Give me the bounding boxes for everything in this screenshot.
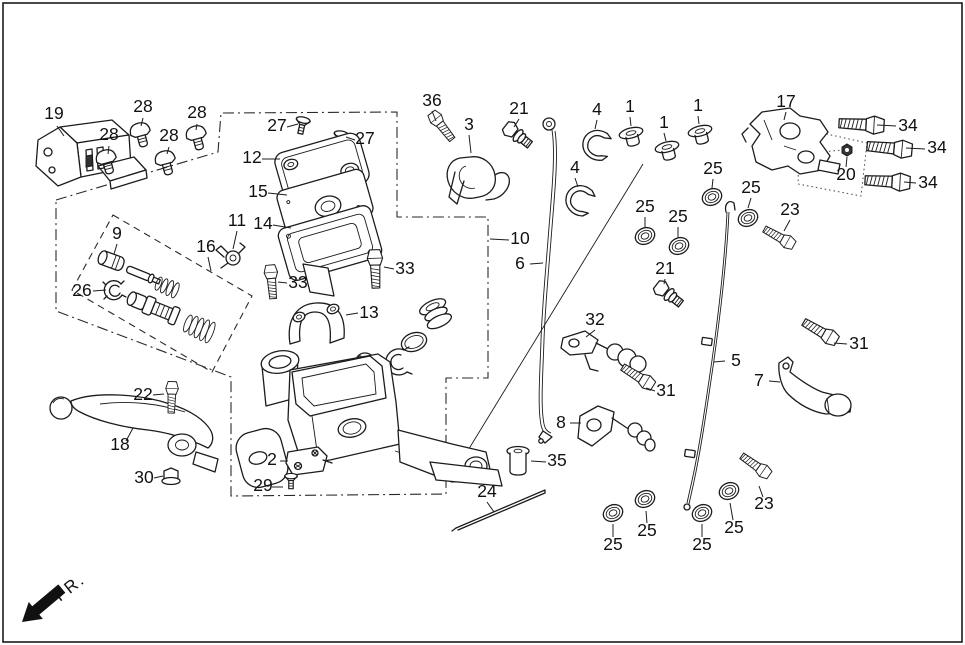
part-label-21: 21 — [509, 98, 528, 118]
part-label-26: 26 — [72, 280, 91, 300]
part-label-28: 28 — [187, 102, 206, 122]
part-label-32: 32 — [585, 309, 604, 329]
part-25-washer — [667, 235, 692, 258]
part-label-28: 28 — [133, 96, 152, 116]
leader-line-part-22 — [153, 394, 164, 395]
part-label-27: 27 — [355, 128, 374, 148]
part-29-screw — [285, 473, 298, 488]
leader-line-part-24 — [487, 502, 494, 512]
part-label-17: 17 — [776, 91, 795, 111]
part-label-11: 11 — [228, 210, 246, 230]
leader-line-part-1 — [698, 116, 699, 124]
part-label-20: 20 — [836, 164, 856, 184]
leader-line-part-1 — [664, 133, 666, 141]
part-23-oil-bolt — [738, 450, 773, 480]
part-label-25: 25 — [637, 520, 656, 540]
part-label-28: 28 — [99, 124, 118, 144]
part-label-35: 35 — [547, 450, 566, 470]
part-26-circlip — [103, 281, 126, 300]
part-28-screw — [153, 149, 179, 177]
leader-line-part-4 — [595, 120, 597, 129]
leader-line-part-1 — [630, 117, 631, 126]
parts-layer — [36, 108, 913, 531]
part-label-18: 18 — [110, 434, 129, 454]
leader-line-part-6 — [530, 263, 543, 264]
part-label-24: 24 — [477, 481, 497, 501]
part-25-washer — [717, 480, 742, 503]
part-1-grommet — [687, 123, 715, 146]
part-label-19: 19 — [44, 103, 63, 123]
part-label-25: 25 — [668, 206, 687, 226]
exploded-diagram-canvas: 1928282828272712151411169263632141114251… — [0, 0, 965, 645]
leader-line-part-5 — [714, 361, 725, 362]
part-32-rod-joint — [561, 331, 646, 372]
part-label-29: 29 — [253, 475, 272, 495]
part-label-25: 25 — [692, 534, 711, 554]
leader-line-part-16 — [208, 257, 211, 271]
leader-line-part-31 — [834, 343, 847, 344]
part-17-bracket — [742, 108, 840, 174]
part-25-washer — [633, 225, 658, 248]
part-label-28: 28 — [159, 125, 178, 145]
leader-line-part-13 — [346, 313, 358, 315]
part-33-bolt — [263, 264, 279, 299]
part-30-pivot-nut — [162, 468, 180, 485]
part-36-bolt — [426, 109, 457, 144]
leader-line-part-11 — [233, 231, 237, 249]
part-35-dust-cup — [507, 447, 529, 476]
part-label-5: 5 — [731, 350, 741, 370]
leader-line-part-30 — [154, 476, 163, 478]
leader-line-part-10 — [490, 239, 509, 240]
part-6-brake-hose — [539, 118, 557, 443]
leader-line-part-7 — [769, 381, 780, 382]
part-1-grommet — [618, 125, 646, 148]
part-label-4: 4 — [592, 99, 602, 119]
part-20-nut — [842, 144, 852, 156]
part-label-2: 2 — [267, 449, 277, 469]
part-label-12: 12 — [242, 147, 261, 167]
part-label-3: 3 — [464, 114, 474, 134]
part-label-8: 8 — [556, 412, 566, 432]
part-label-25: 25 — [635, 196, 654, 216]
leader-line-part-27 — [287, 124, 298, 127]
part-13-handlebar-clamp — [289, 303, 344, 344]
part-piston-assembly — [125, 289, 181, 326]
part-label-34: 34 — [918, 172, 938, 192]
part-label-25: 25 — [741, 177, 760, 197]
part-3-hose-clamp — [447, 157, 509, 204]
part-label-33: 33 — [395, 258, 414, 278]
piston-kit-boundary — [72, 215, 252, 372]
part-label-13: 13 — [359, 302, 378, 322]
part-11-wire-guide — [216, 243, 245, 268]
part-25-washer — [700, 186, 725, 209]
part-23-oil-bolt — [761, 223, 797, 251]
part-label-1: 1 — [693, 95, 703, 115]
part-label-14: 14 — [253, 213, 273, 233]
part-label-1: 1 — [659, 112, 669, 132]
part-9-piston-cup — [96, 250, 125, 272]
part-label-33: 33 — [288, 272, 307, 292]
part-label-7: 7 — [754, 370, 764, 390]
part-18-brake-lever — [50, 395, 218, 472]
part-master-cylinder-body — [233, 348, 502, 491]
part-34-bolt — [865, 171, 911, 191]
leader-line-part-33 — [384, 267, 394, 269]
leader-line-part-33 — [278, 282, 287, 283]
part-label-4: 4 — [570, 157, 580, 177]
part-label-27: 27 — [267, 115, 286, 135]
part-o-ring — [399, 329, 430, 355]
part-4-hose-clip — [579, 127, 613, 162]
part-label-23: 23 — [780, 199, 799, 219]
part-28-screw — [184, 124, 210, 152]
part-label-1: 1 — [625, 96, 635, 116]
part-7-brake-arm — [779, 357, 851, 416]
leader-line-part-35 — [531, 461, 546, 462]
leader-line-part-25 — [712, 179, 713, 188]
part-27-cover-screw — [293, 116, 310, 136]
leader-line-part-3 — [469, 135, 471, 153]
part-25-washer — [736, 207, 761, 230]
part-label-9: 9 — [112, 223, 122, 243]
part-33-bolt — [367, 250, 384, 289]
part-label-15: 15 — [248, 181, 267, 201]
part-label-25: 25 — [703, 158, 722, 178]
part-5-brake-rod — [684, 202, 735, 510]
part-34-bolt — [866, 137, 912, 159]
part-label-34: 34 — [927, 137, 947, 157]
part-label-6: 6 — [515, 253, 525, 273]
part-label-10: 10 — [510, 228, 530, 248]
part-label-34: 34 — [898, 115, 918, 135]
part-1-grommet — [654, 139, 682, 162]
part-label-22: 22 — [133, 384, 152, 404]
part-label-36: 36 — [422, 90, 441, 110]
part-label-21: 21 — [655, 258, 674, 278]
part-label-31: 31 — [849, 333, 868, 353]
parts-diagram-page: 1928282828272712151411169263632141114251… — [0, 0, 965, 645]
part-25-washer — [633, 488, 658, 511]
leader-line-part-23 — [784, 220, 790, 231]
part-label-16: 16 — [196, 236, 215, 256]
part-25-washer — [690, 502, 715, 525]
part-25-washer — [601, 502, 626, 525]
part-21-banjo-bolt — [501, 119, 535, 151]
part-label-23: 23 — [754, 493, 773, 513]
part-4-hose-clip — [561, 181, 598, 219]
part-return-spring-large — [181, 312, 217, 344]
part-34-bolt — [839, 114, 885, 134]
part-8-joint-bracket — [578, 406, 655, 451]
part-label-25: 25 — [724, 517, 743, 537]
leader-line-part-25 — [748, 198, 751, 208]
part-label-30: 30 — [134, 467, 154, 487]
fr-direction-indicator: FR. — [15, 570, 89, 631]
part-label-25: 25 — [603, 534, 622, 554]
part-24-cable-needle — [452, 490, 545, 531]
leader-line-part-9 — [114, 244, 117, 254]
part-label-31: 31 — [656, 380, 675, 400]
part-boot — [417, 295, 454, 332]
part-21-banjo-bolt — [652, 278, 686, 310]
